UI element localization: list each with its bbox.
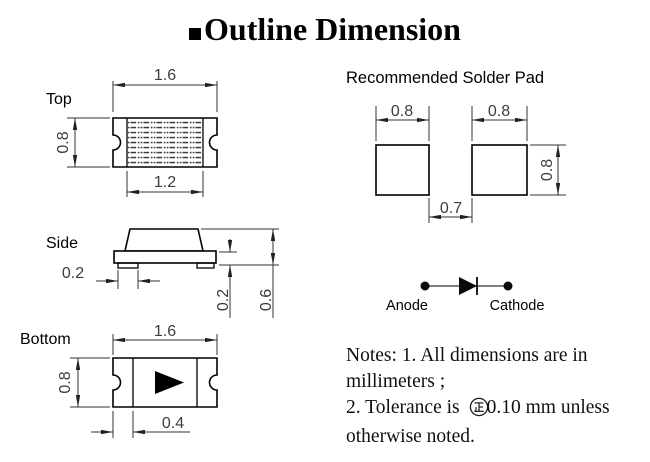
notes-line-1: Notes: 1. All dimensions are in [346,343,646,369]
dimension-value: 0.6 [258,289,275,311]
notes-line-3: 2. Tolerance is 0.10 mm unless [346,395,646,425]
cathode-terminal-dot [504,282,513,291]
bottom-terminal-dimension: 0.4 [91,411,190,438]
solder-pad-left [376,145,429,195]
bottom-view-label: Bottom [20,331,71,348]
outline-dimension-page: Outline Dimension Top 1.6 [0,0,650,462]
top-inner-width-dimension: 1.2 [127,171,203,197]
right-pad-width-dimension: 0.8 [472,103,527,141]
dimension-value: 0.2 [215,289,232,311]
side-height-dimensions: 0.2 0.6 [201,229,279,318]
dimension-value: 0.8 [391,103,413,120]
side-terminal-dimension: 0.2 [62,265,160,289]
bottom-width-dimension: 1.6 [113,323,217,355]
top-height-dimension: 0.8 [55,118,110,167]
solder-pad-title: Recommended Solder Pad [346,69,544,87]
anode-terminal-dot [421,282,430,291]
notes-line-3-after: 0.10 mm unless [487,397,610,418]
side-view-label: Side [46,235,78,252]
dimension-value: 1.6 [154,67,176,84]
dimension-value: 0.7 [440,200,462,217]
notes-line-2: millimeters ; [346,369,646,395]
dimension-value: 0.8 [55,131,72,153]
dimension-value: 0.4 [162,415,184,432]
dimension-value: 0.2 [62,265,84,282]
bottom-view: Bottom 1.6 0.8 0.4 [20,323,217,438]
top-view: Top 1.6 0.8 1.2 [46,67,217,197]
notes-line-3-before: 2. Tolerance is [346,397,460,418]
left-pad-width-dimension: 0.8 [376,103,429,141]
side-view-base-plate [114,251,216,263]
side-view: Side 0.2 0.2 0.6 [46,229,279,318]
diode-symbol-icon [459,277,477,295]
dimension-value: 0.8 [57,371,74,393]
side-view-lens-profile [125,229,203,251]
pad-gap-dimension: 0.7 [429,198,472,223]
top-width-dimension: 1.6 [113,67,217,112]
dimension-value: 1.6 [154,323,176,340]
top-view-label: Top [46,91,72,108]
tolerance-circled-symbol-icon [469,397,489,425]
dimension-value: 1.2 [154,174,176,191]
polarity-diagram: Anode Cathode [386,277,544,314]
bottom-height-dimension: 0.8 [57,358,110,407]
cathode-label: Cathode [490,298,545,314]
notes-block: Notes: 1. All dimensions are in millimet… [346,343,646,450]
top-view-emitting-area-hatch [128,119,202,166]
anode-label: Anode [386,298,428,314]
dimension-value: 0.8 [539,159,556,181]
notes-line-4: otherwise noted. [346,424,646,450]
solder-pad-right [472,145,527,195]
pad-height-dimension: 0.8 [530,145,566,195]
solder-pad-section: Recommended Solder Pad 0.8 0.8 0.8 [346,69,566,223]
dimension-value: 0.8 [488,103,510,120]
